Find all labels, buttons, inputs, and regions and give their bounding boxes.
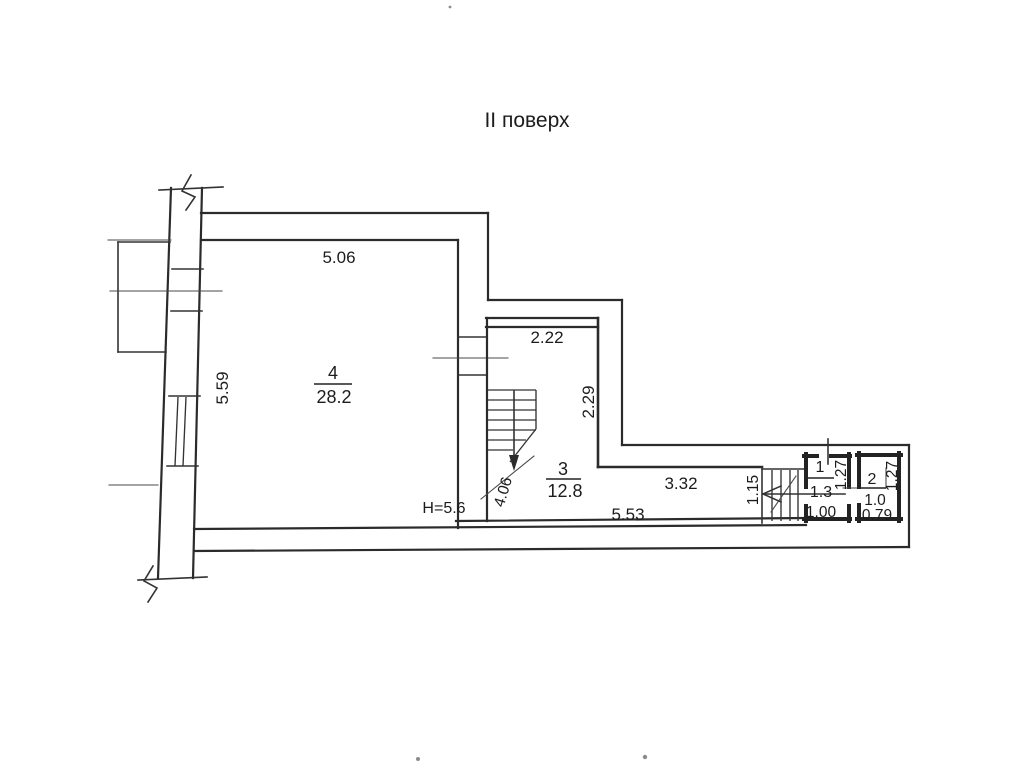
wall-break-cap-top — [159, 187, 223, 190]
page-title: II поверх — [484, 109, 570, 132]
dim-room2-width: 0.79 — [862, 507, 892, 524]
room4-room3-wall-opening — [433, 337, 508, 375]
room3-area: 12.8 — [547, 481, 582, 501]
dim-stair-run: 4.06 — [491, 475, 516, 509]
dim-corridor: 3.32 — [664, 474, 697, 493]
room1-area: 1.3 — [810, 484, 832, 501]
dim-room4-top: 5.06 — [322, 248, 355, 267]
dim-room4-left: 5.59 — [213, 371, 232, 404]
stair-down-arrow — [509, 391, 519, 471]
dim-room1-width: 1.00 — [806, 504, 837, 521]
window-glazing — [175, 397, 186, 466]
dim-corridor-bottom: 5.53 — [611, 505, 644, 524]
wall-break-mark-top — [182, 175, 195, 210]
room1-number: 1 — [816, 459, 825, 476]
room4-area: 28.2 — [316, 387, 351, 407]
wall-break-cap-bottom — [138, 577, 207, 580]
room2-number: 2 — [868, 471, 877, 488]
dim-room3-top: 2.22 — [530, 328, 563, 347]
dim-room1-depth: 1.27 — [833, 460, 850, 490]
wall-break-mark-bottom — [144, 566, 157, 602]
floor-plan-drawing: II поверх 4 28.2 Н=5.6 3 12.8 1 1.3 1.00… — [0, 0, 1024, 768]
dim-small-stair: 1.15 — [745, 475, 762, 505]
dim-room2-depth: 1.27 — [884, 461, 901, 491]
floor-plan-page: II поверх 4 28.2 Н=5.6 3 12.8 1 1.3 1.00… — [0, 0, 1024, 768]
dim-room3-right: 2.29 — [579, 385, 598, 418]
height-note: Н=5.6 — [422, 500, 465, 517]
room4-number: 4 — [328, 363, 338, 383]
room3-number: 3 — [558, 459, 568, 479]
balcony-outline — [118, 242, 170, 352]
